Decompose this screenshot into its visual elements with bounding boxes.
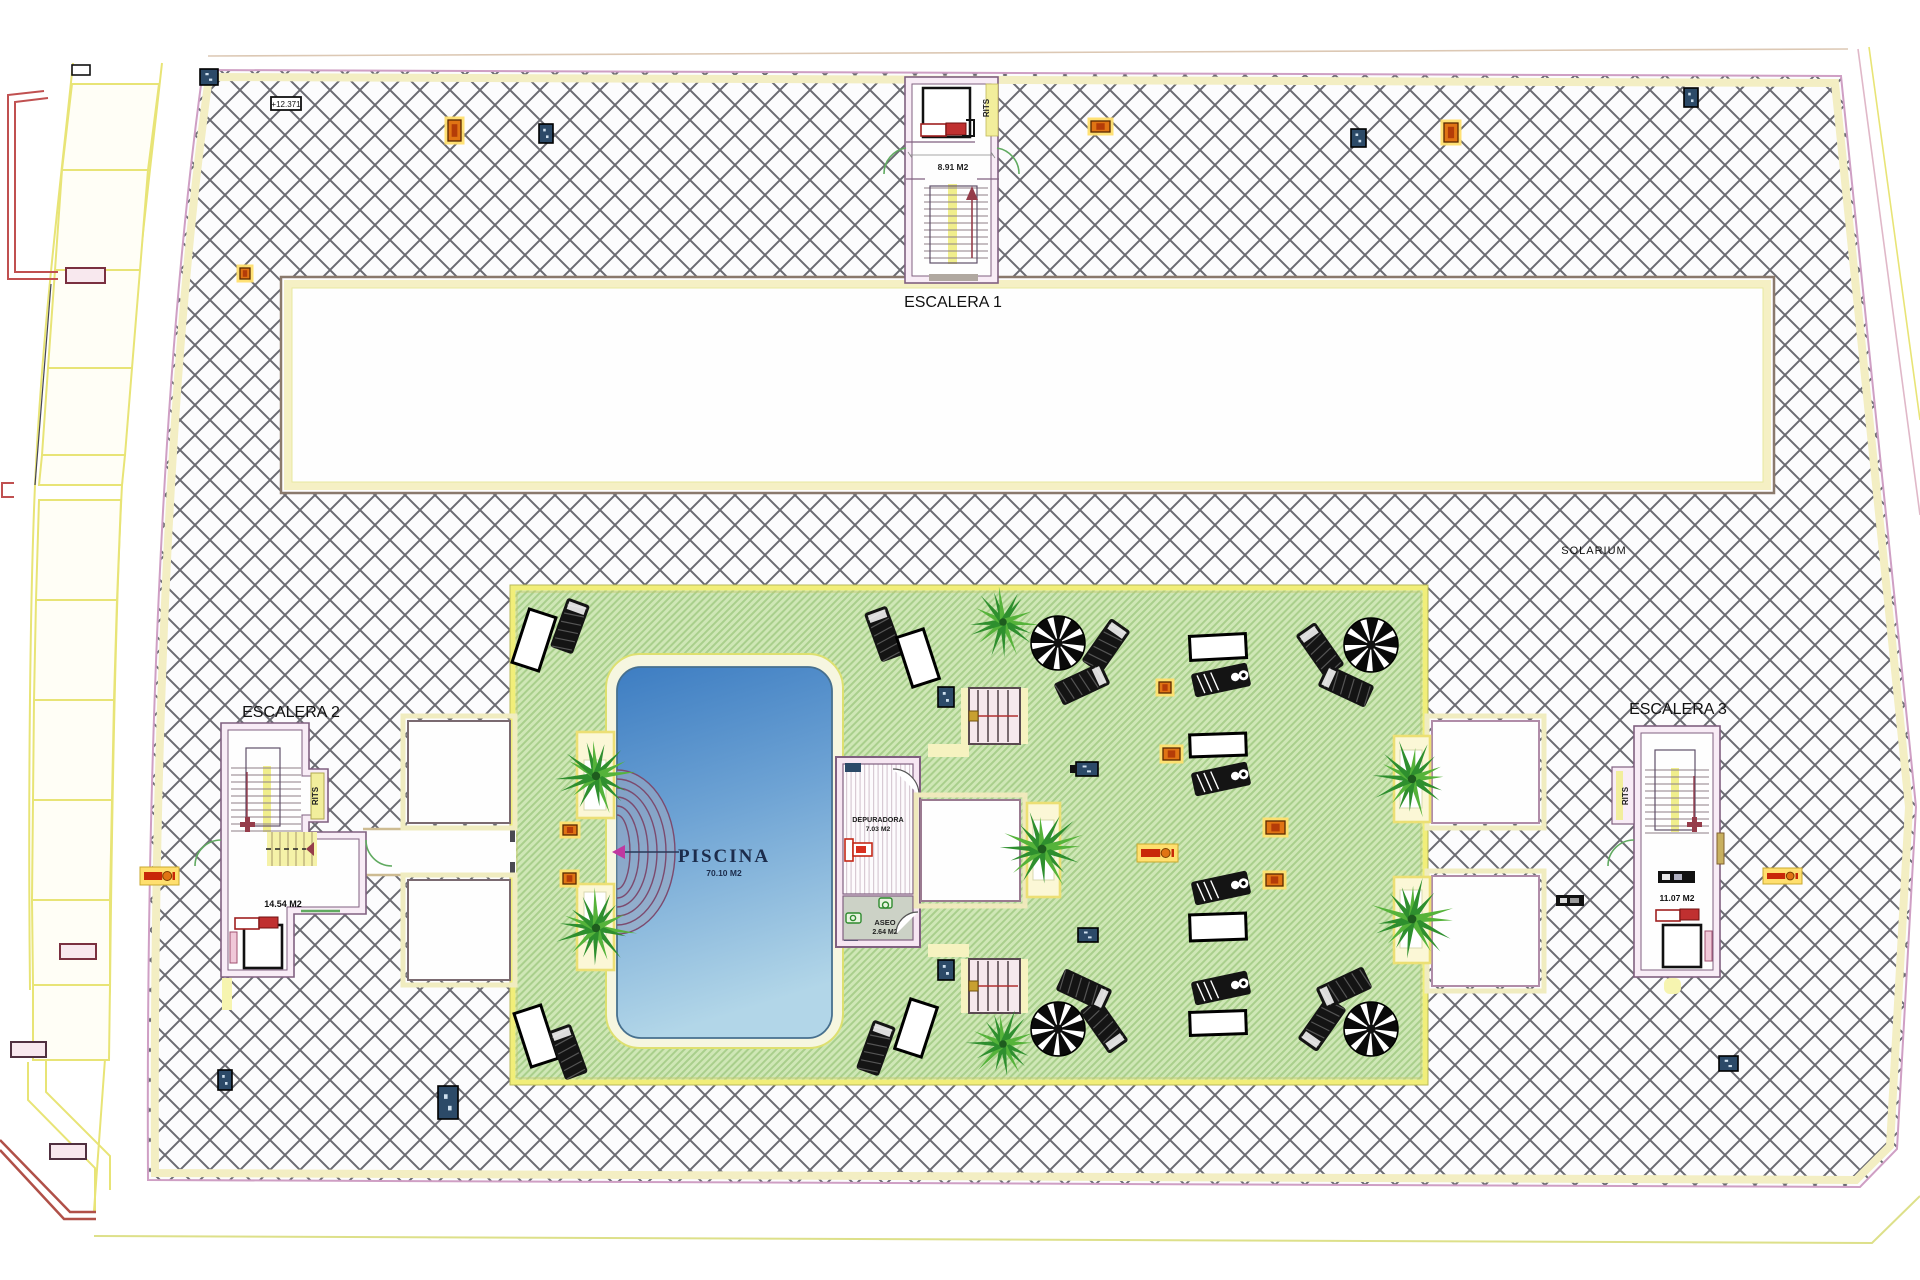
- svg-text:70.10 M2: 70.10 M2: [706, 868, 742, 878]
- svg-text:ESCALERA 2: ESCALERA 2: [242, 704, 340, 721]
- svg-text:8.91 M2: 8.91 M2: [938, 162, 969, 172]
- svg-text:RITS: RITS: [1621, 786, 1630, 805]
- svg-text:ESCALERA 3: ESCALERA 3: [1629, 701, 1727, 718]
- svg-text:+12.371: +12.371: [271, 100, 301, 109]
- svg-text:PISCINA: PISCINA: [678, 846, 770, 867]
- svg-text:ESCALERA 1: ESCALERA 1: [904, 294, 1002, 311]
- svg-text:11.07 M2: 11.07 M2: [1660, 893, 1695, 903]
- svg-text:SOLARIUM: SOLARIUM: [1561, 545, 1626, 557]
- svg-text:ASEO: ASEO: [874, 918, 895, 927]
- svg-text:DEPURADORA: DEPURADORA: [852, 815, 904, 824]
- svg-text:14.54 M2: 14.54 M2: [264, 899, 302, 909]
- svg-text:2.64 M2: 2.64 M2: [872, 929, 897, 936]
- svg-text:7.03 M2: 7.03 M2: [866, 826, 891, 833]
- svg-text:RITS: RITS: [311, 786, 320, 805]
- svg-text:RITS: RITS: [982, 98, 991, 117]
